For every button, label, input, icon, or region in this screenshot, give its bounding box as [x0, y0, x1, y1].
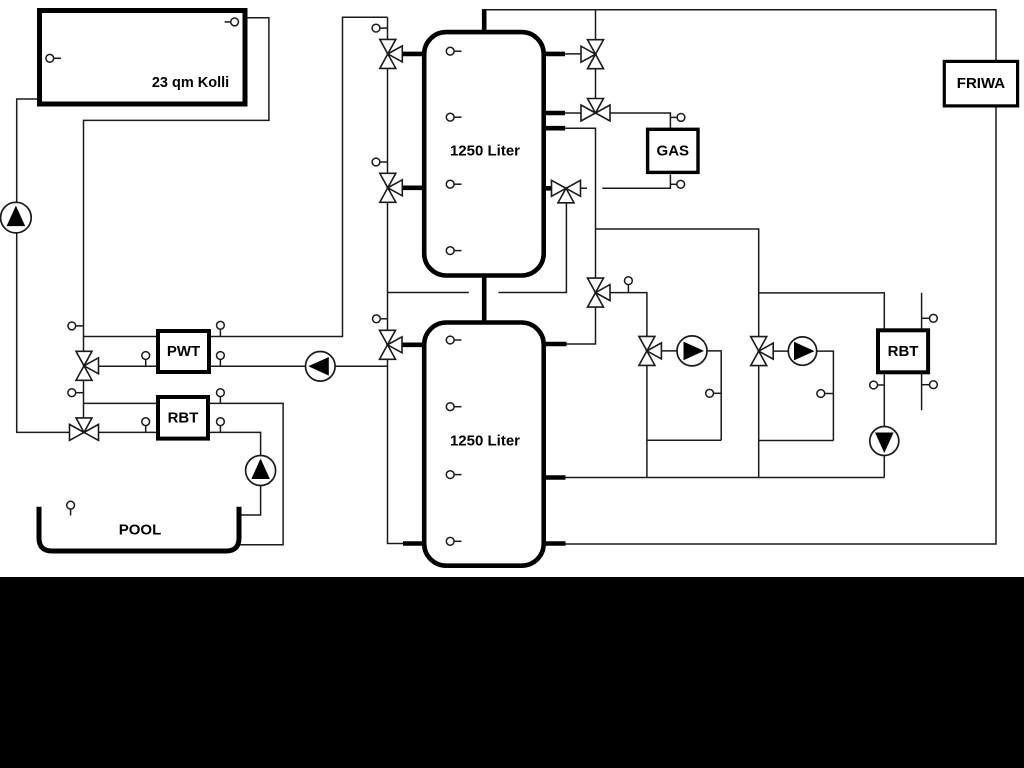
svg-text:RBT: RBT — [168, 409, 199, 426]
svg-text:RBT: RBT — [888, 343, 919, 360]
svg-text:1250 Liter: 1250 Liter — [450, 143, 520, 160]
svg-text:POOL: POOL — [119, 522, 162, 539]
svg-text:FRIWA: FRIWA — [957, 75, 1005, 92]
svg-text:1250 Liter: 1250 Liter — [450, 433, 520, 450]
svg-text:PWT: PWT — [167, 343, 200, 360]
svg-text:GAS: GAS — [657, 142, 690, 159]
svg-text:23 qm Kolli: 23 qm Kolli — [152, 75, 229, 91]
